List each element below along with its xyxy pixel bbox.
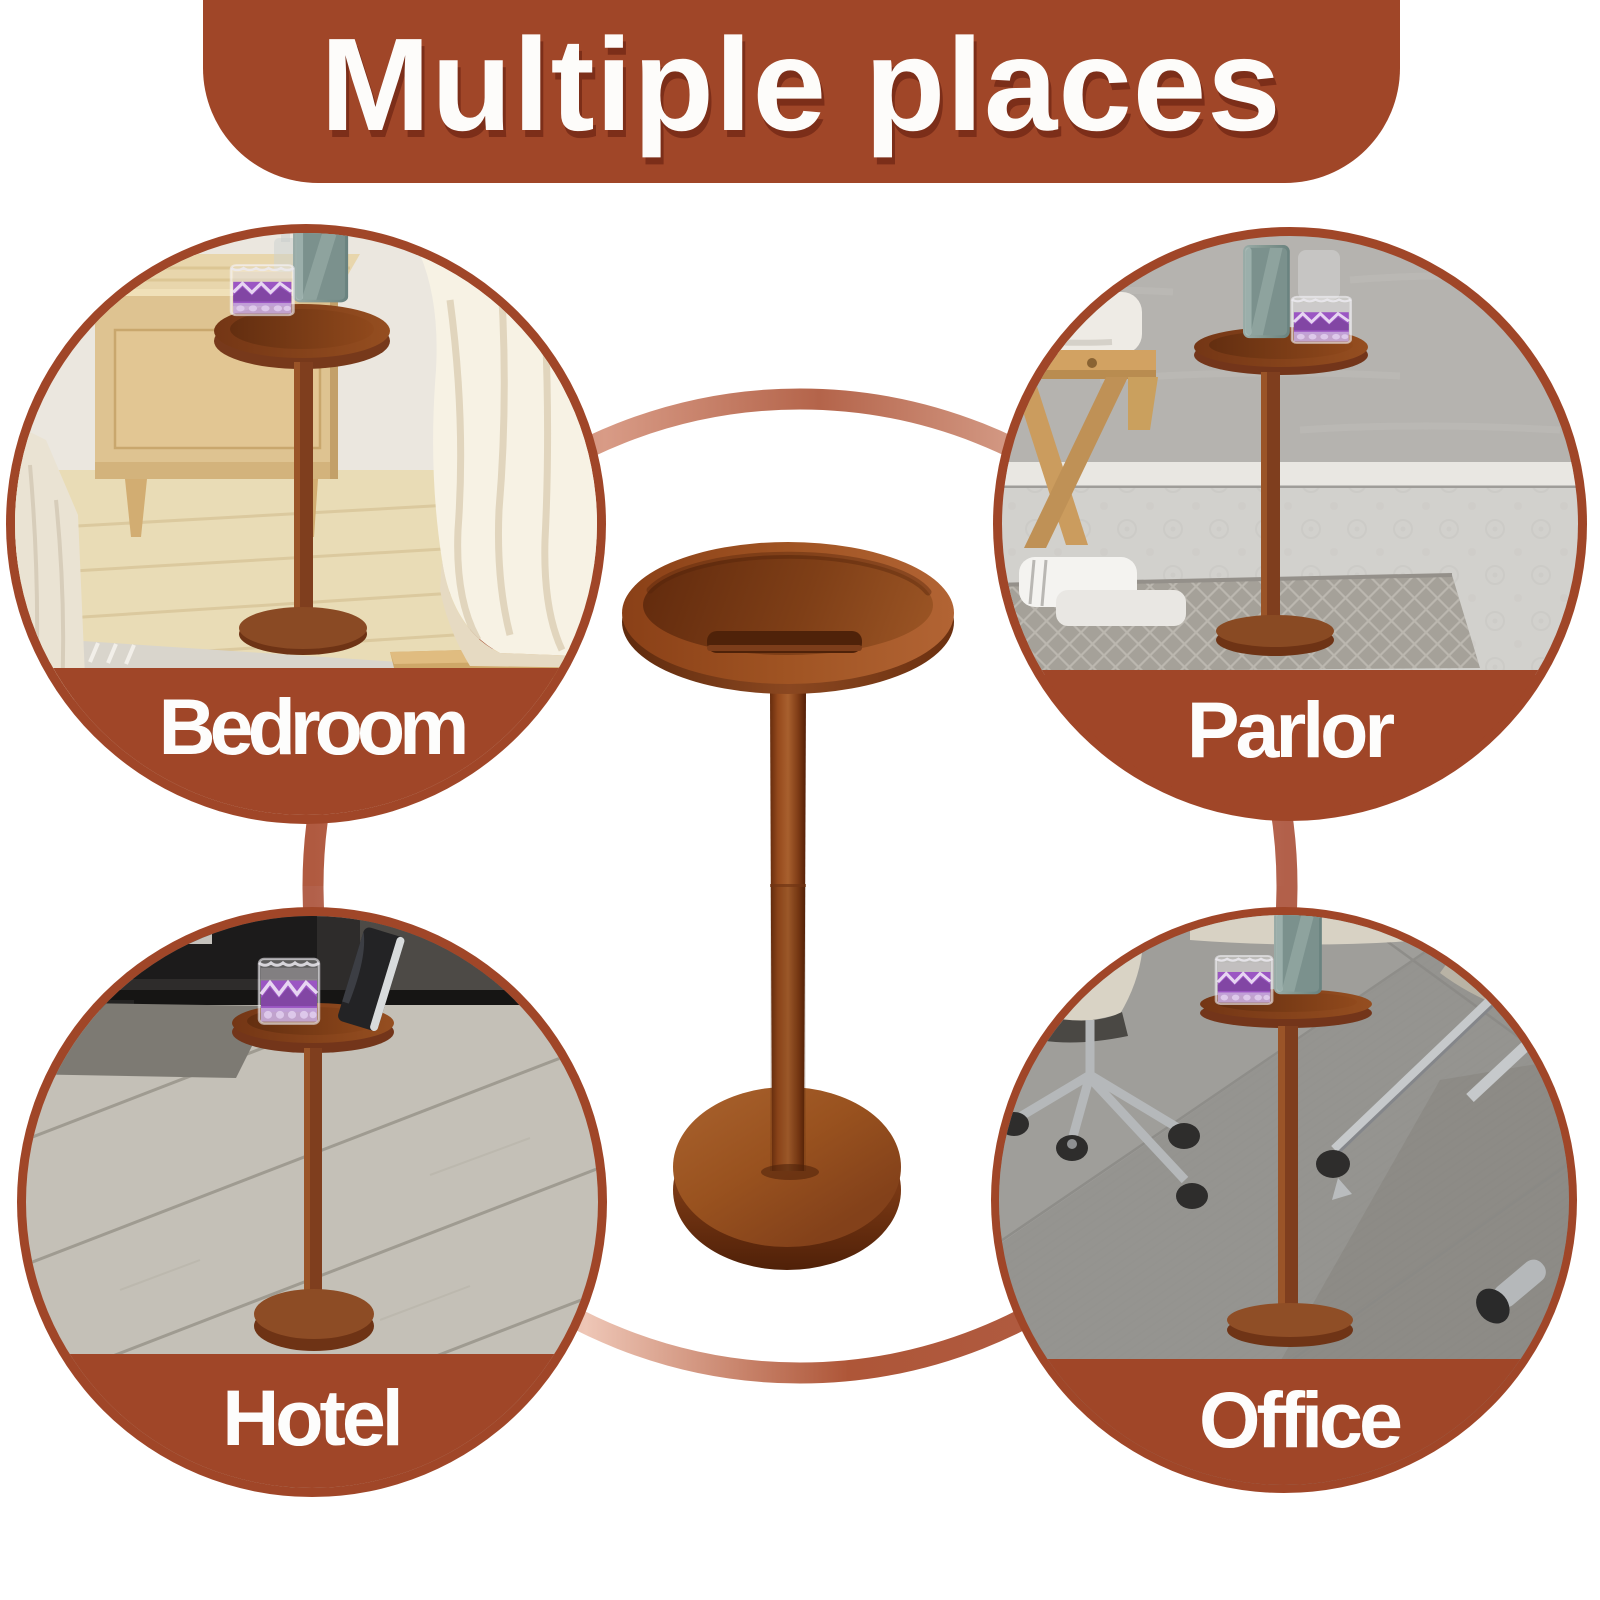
svg-text:Bedroom: Bedroom	[159, 682, 466, 771]
svg-text:Office: Office	[1199, 1375, 1401, 1464]
svg-text:Multiple places: Multiple places	[320, 11, 1281, 158]
svg-text:Hotel: Hotel	[222, 1373, 400, 1462]
svg-text:Parlor: Parlor	[1187, 685, 1395, 774]
